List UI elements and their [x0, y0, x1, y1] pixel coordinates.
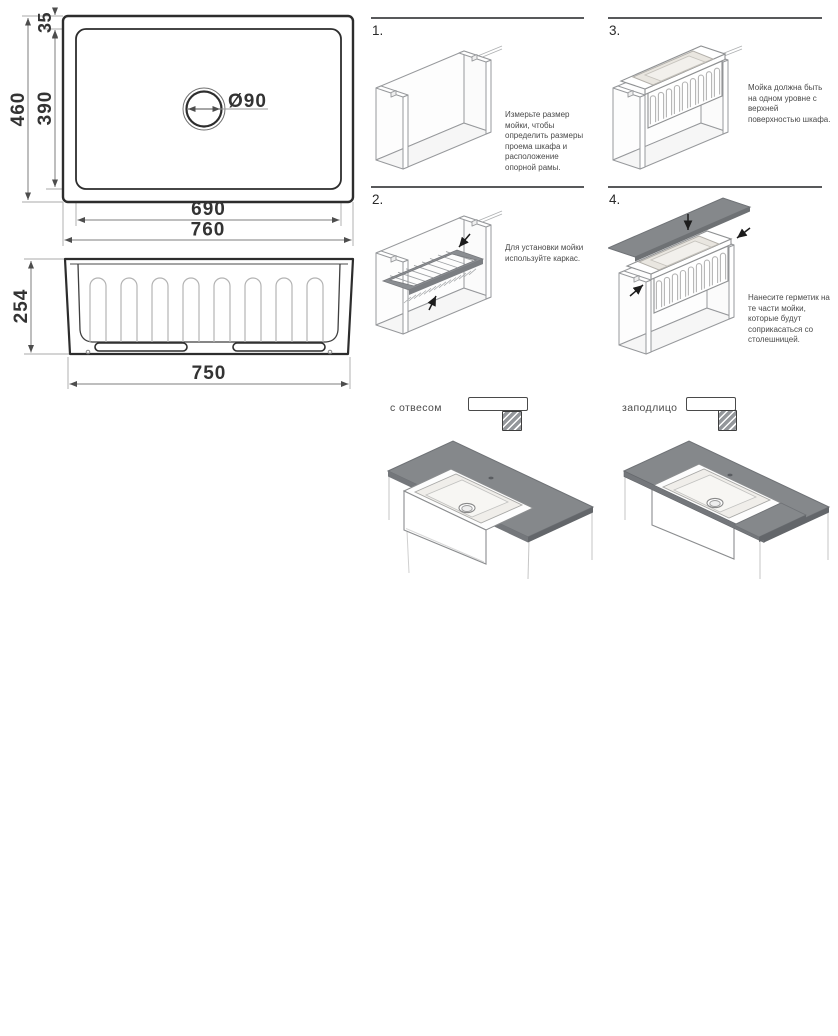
step-2: 2.	[371, 186, 584, 375]
dimension-label-bowl-width: 690	[191, 199, 226, 220]
step-3-illustration-sink-in-cabinet	[608, 33, 748, 175]
step-caption: Нанесите герметик на те части мойки, кот…	[748, 293, 834, 346]
sink-edge-hatch-icon	[718, 410, 737, 431]
step-1-illustration-cabinet	[371, 33, 503, 175]
step-4: 4.	[608, 186, 822, 375]
sink-installation-sheet: 460 390 35 690 760 Ø90	[0, 0, 838, 1036]
base-rail-left	[95, 343, 187, 351]
divider	[608, 17, 822, 19]
dimension-label-height: 254	[11, 289, 32, 324]
cabinet-left-stile	[403, 95, 408, 169]
dimension-label-drain: Ø90	[228, 91, 267, 112]
dimension-label-overall-width: 760	[191, 220, 226, 241]
step-caption: Для установки мойки используйте каркас.	[505, 243, 587, 264]
countertop-cross-section-icon	[686, 397, 736, 411]
mount-option-label: с отвесом	[390, 402, 442, 414]
step-caption: Мойка должна быть на одном уровне с верх…	[748, 83, 832, 125]
divider	[371, 17, 584, 19]
step-1: 1. Измерьте размер мойки, чтобы определи…	[371, 17, 584, 186]
mount-overhang-illustration	[374, 438, 604, 580]
base-rail-right	[233, 343, 325, 351]
sink-edge-hatch-icon	[502, 411, 522, 431]
dimension-label-bowl-depth: 390	[35, 91, 56, 126]
sink-front-view-drawing: 254 750	[0, 250, 365, 400]
dimension-label-base-width: 750	[192, 363, 227, 384]
step-caption: Измерьте размер мойки, чтобы определить …	[505, 110, 585, 173]
dimension-label-rim-offset: 35	[35, 12, 55, 33]
mount-option-overhang: с отвесом	[371, 395, 607, 585]
arrow-icon	[737, 228, 750, 238]
divider	[371, 186, 584, 188]
mount-option-flush: заподлицо	[608, 395, 838, 585]
mount-option-label: заподлицо	[622, 402, 677, 414]
mount-flush-illustration	[610, 438, 838, 580]
faucet-hole	[727, 474, 732, 477]
faucet-hole	[488, 477, 493, 480]
countertop-cross-section-icon	[468, 397, 528, 411]
sink-profile-outline	[65, 259, 353, 354]
step-4-illustration-countertop	[608, 194, 760, 366]
sink-top-view-drawing: 460 390 35 690 760 Ø90	[0, 0, 365, 250]
step-3: 3.	[608, 17, 822, 186]
step-2-illustration-frame	[371, 198, 503, 344]
dimension-label-overall-depth: 460	[8, 92, 29, 127]
divider	[608, 186, 822, 188]
